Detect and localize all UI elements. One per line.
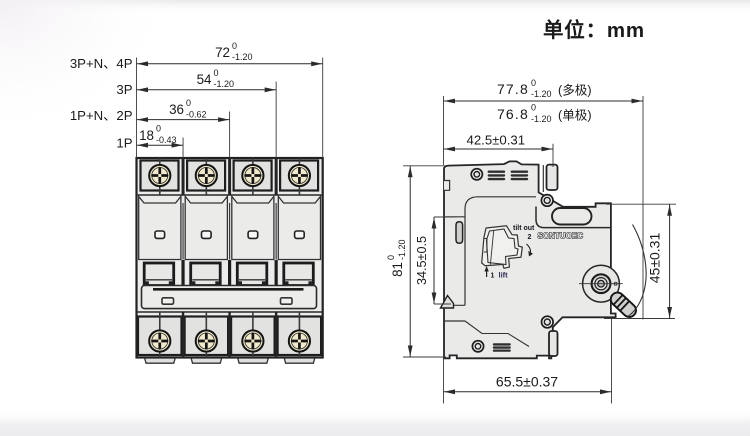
svg-text:42.5±0.31: 42.5±0.31 — [467, 132, 526, 147]
svg-text:54: 54 — [197, 72, 212, 87]
svg-text:0: 0 — [232, 41, 237, 51]
svg-text:-1.20: -1.20 — [397, 239, 407, 260]
svg-text:0: 0 — [214, 68, 219, 78]
svg-text:lift: lift — [499, 271, 509, 280]
svg-text:34.5±0.5: 34.5±0.5 — [415, 236, 429, 285]
svg-text:单位：mm: 单位：mm — [543, 18, 645, 42]
svg-text:(单极): (单极) — [558, 108, 592, 122]
svg-text:tilt out: tilt out — [513, 225, 535, 232]
svg-text:77.8: 77.8 — [497, 81, 529, 97]
svg-text:81: 81 — [390, 262, 405, 277]
svg-text:3P+N、4P: 3P+N、4P — [70, 56, 133, 71]
svg-text:-1.20: -1.20 — [214, 79, 235, 89]
svg-text:-1.20: -1.20 — [531, 89, 552, 99]
svg-text:36: 36 — [169, 102, 184, 117]
svg-text:2: 2 — [528, 234, 532, 241]
svg-text:65.5±0.37: 65.5±0.37 — [496, 374, 558, 390]
svg-text:76.8: 76.8 — [497, 106, 529, 122]
svg-text:0: 0 — [386, 255, 396, 260]
svg-text:18: 18 — [139, 128, 154, 143]
svg-text:0: 0 — [156, 124, 161, 134]
svg-text:-0.43: -0.43 — [156, 135, 177, 145]
svg-text:-1.20: -1.20 — [232, 52, 253, 62]
svg-text:0: 0 — [531, 78, 536, 88]
svg-text:3P: 3P — [116, 82, 132, 97]
svg-text:-1.20: -1.20 — [531, 114, 552, 124]
svg-text:72: 72 — [215, 45, 230, 60]
svg-text:0: 0 — [186, 98, 191, 108]
svg-text:45±0.31: 45±0.31 — [647, 233, 663, 284]
svg-text:(多极): (多极) — [558, 84, 592, 98]
svg-text:1: 1 — [491, 273, 495, 280]
svg-text:1P+N、2P: 1P+N、2P — [70, 108, 133, 123]
svg-text:-0.62: -0.62 — [186, 109, 207, 119]
svg-text:SONTUOEC: SONTUOEC — [538, 231, 584, 240]
svg-text:1P: 1P — [116, 136, 132, 151]
svg-text:0: 0 — [531, 103, 536, 113]
